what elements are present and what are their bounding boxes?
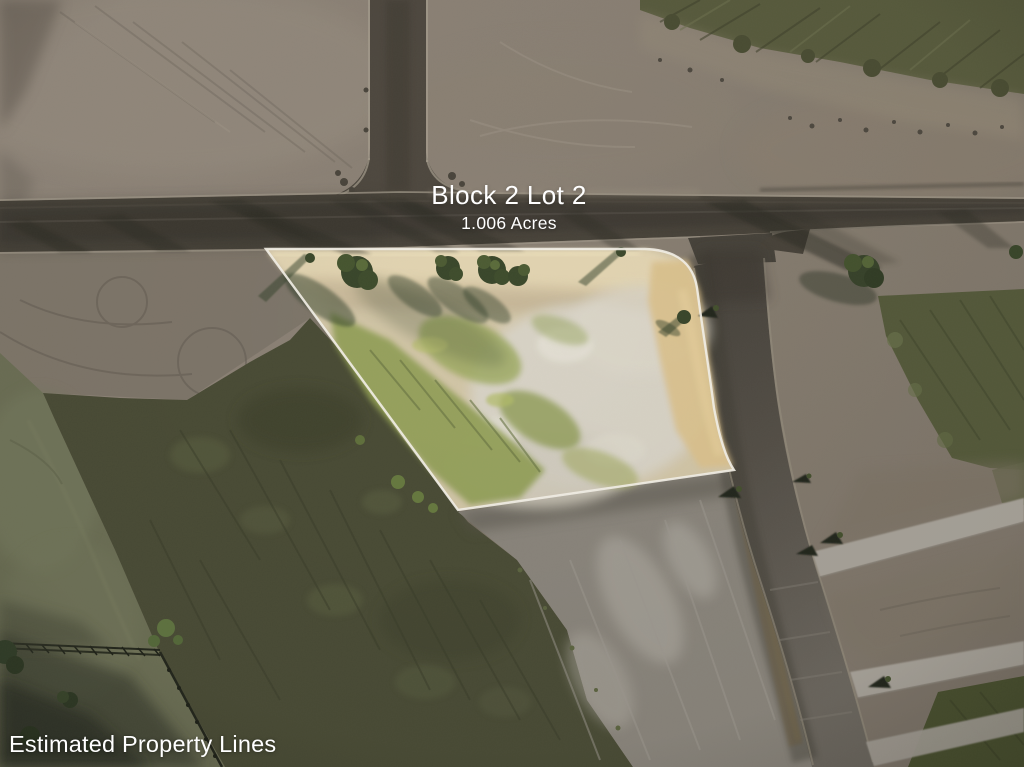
lot-acreage: 1.006 Acres bbox=[431, 213, 587, 234]
film-grain bbox=[0, 0, 1024, 767]
lot-title: Block 2 Lot 2 bbox=[431, 182, 587, 209]
photo-canvas bbox=[0, 0, 1024, 767]
aerial-photo: Block 2 Lot 2 1.006 Acres Estimated Prop… bbox=[0, 0, 1024, 767]
lot-label-block: Block 2 Lot 2 1.006 Acres bbox=[431, 182, 587, 234]
estimated-property-lines-label: Estimated Property Lines bbox=[9, 731, 276, 758]
